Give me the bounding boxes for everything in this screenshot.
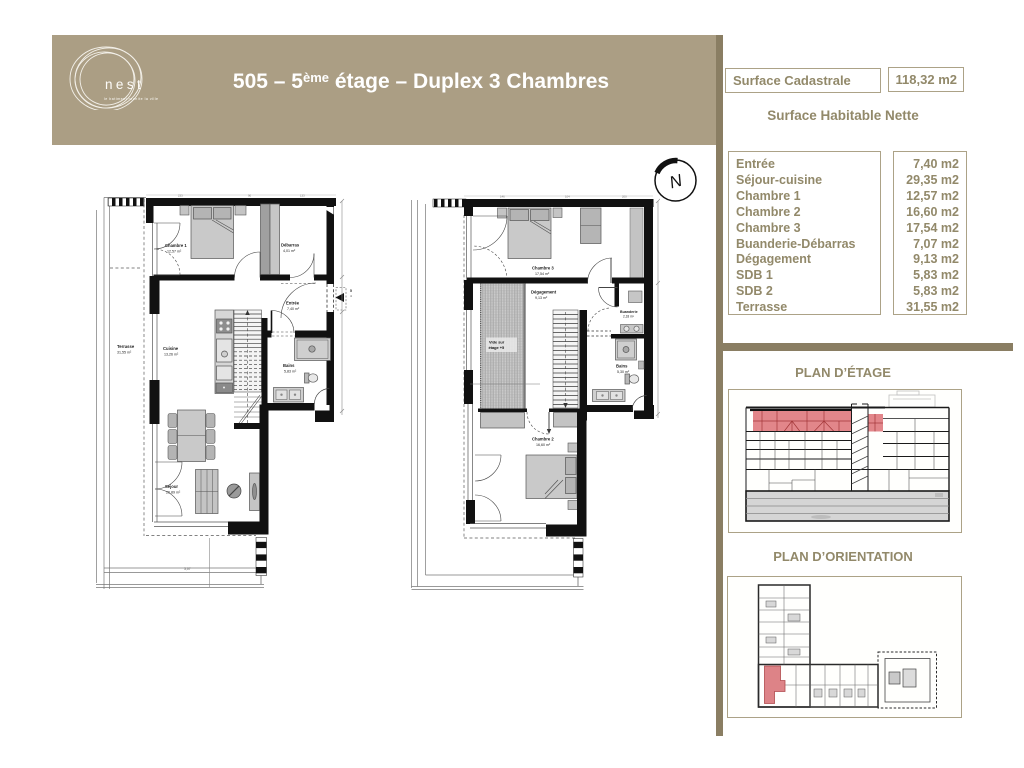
svg-text:41,25 m² + 53,67 m²: 41,25 m² + 53,67 m² bbox=[350, 294, 352, 298]
svg-text:146: 146 bbox=[500, 195, 505, 199]
svg-text:Chambre 1: Chambre 1 bbox=[165, 243, 187, 248]
svg-text:9,13 m²: 9,13 m² bbox=[535, 296, 548, 300]
svg-text:Entrée: Entrée bbox=[286, 301, 300, 306]
svg-text:12,57 m²: 12,57 m² bbox=[167, 250, 182, 254]
svg-text:104: 104 bbox=[565, 195, 570, 199]
svg-text:Vide sur: Vide sur bbox=[489, 340, 505, 345]
svg-text:5.05.DUO: 5.05.DUO bbox=[350, 289, 352, 293]
svg-text:133: 133 bbox=[300, 194, 305, 198]
svg-text:13,26 m²: 13,26 m² bbox=[164, 353, 179, 357]
svg-text:7,40 m²: 7,40 m² bbox=[287, 307, 300, 311]
svg-text:Terrasse: Terrasse bbox=[117, 344, 135, 349]
svg-text:Bains: Bains bbox=[283, 363, 295, 368]
svg-text:5,30 m²: 5,30 m² bbox=[617, 370, 630, 374]
svg-text:17,54 m²: 17,54 m² bbox=[535, 272, 550, 276]
svg-text:2,18 m²: 2,18 m² bbox=[623, 315, 634, 319]
svg-text:Chambre 3: Chambre 3 bbox=[532, 266, 554, 271]
svg-text:le batiment reunite la ville: le batiment reunite la ville bbox=[104, 97, 159, 101]
svg-text:N: N bbox=[667, 170, 685, 192]
svg-text:31,55 m²: 31,55 m² bbox=[117, 351, 132, 355]
svg-text:90: 90 bbox=[248, 194, 252, 198]
svg-text:Bains: Bains bbox=[616, 364, 628, 369]
svg-text:3,07: 3,07 bbox=[184, 567, 191, 571]
svg-text:Cuisine: Cuisine bbox=[163, 346, 179, 351]
svg-text:200: 200 bbox=[622, 195, 627, 199]
svg-text:Débarras: Débarras bbox=[281, 243, 300, 248]
svg-text:16,60 m²: 16,60 m² bbox=[536, 443, 551, 447]
svg-text:Chambre 2: Chambre 2 bbox=[532, 437, 554, 442]
svg-text:étage +5: étage +5 bbox=[489, 345, 506, 350]
svg-text:233: 233 bbox=[178, 194, 183, 198]
svg-text:Dégagement: Dégagement bbox=[531, 290, 557, 295]
svg-text:4,01 m²: 4,01 m² bbox=[283, 249, 296, 253]
svg-text:5,83 m²: 5,83 m² bbox=[284, 370, 297, 374]
svg-text:Buanderie: Buanderie bbox=[620, 310, 638, 314]
